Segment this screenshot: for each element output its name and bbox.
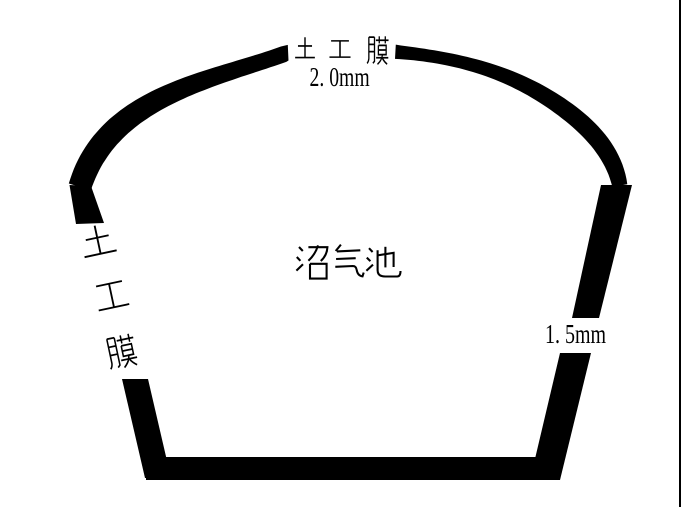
- svg-text:2. 0mm: 2. 0mm: [310, 62, 370, 92]
- svg-text:1. 5mm: 1. 5mm: [545, 319, 606, 349]
